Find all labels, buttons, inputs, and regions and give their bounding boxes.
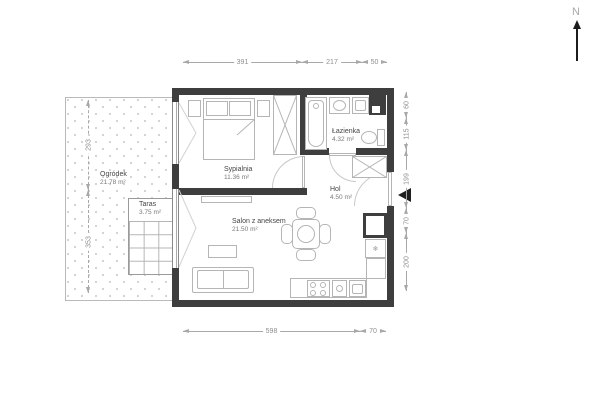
wall-top	[172, 88, 394, 95]
tv-board	[201, 196, 252, 203]
dim-label: 391	[234, 59, 252, 66]
sink-basin	[352, 284, 363, 294]
dim-label: 217	[323, 59, 341, 66]
dim-label: 70	[366, 328, 380, 335]
burner-3	[310, 290, 316, 296]
burner-2	[320, 282, 326, 288]
terrace-grid	[129, 221, 173, 274]
room-area: 11.36 m²	[224, 174, 252, 182]
fridge-icon: ❄	[373, 245, 379, 253]
dim-right-1: 60	[406, 92, 407, 118]
dim-left-1: 293	[88, 100, 89, 190]
room-name: Taras	[139, 201, 161, 209]
window-swing-marks	[179, 100, 199, 270]
pillow-left	[206, 101, 228, 116]
window-bedroom	[172, 102, 179, 164]
chair-bottom	[296, 249, 316, 261]
floor-plan: N Ogródek 21.78 m² Taras 3.75 m²	[0, 0, 600, 418]
room-name: Salon z aneksem	[232, 218, 286, 226]
wardrobe-bedroom	[273, 95, 297, 155]
washbasin-bowl	[333, 100, 346, 111]
wall-bathroom-hol-right	[356, 148, 387, 155]
fridge: ❄	[365, 239, 386, 258]
chair-top	[296, 207, 316, 219]
room-name: Sypialnia	[224, 166, 252, 174]
dim-bottom-2: 70	[360, 331, 386, 332]
dim-top-3: 50	[362, 62, 387, 63]
room-label-lazienka: Łazienka 4.32 m²	[332, 128, 360, 144]
room-area: 4.50 m²	[330, 194, 352, 202]
room-name: Łazienka	[332, 128, 360, 136]
room-area: 3.75 m²	[139, 209, 161, 217]
chair-right	[319, 224, 331, 244]
bathtub-drain	[313, 103, 319, 109]
north-label: N	[572, 6, 580, 18]
wall-left-upper	[172, 88, 179, 102]
room-label-sypialnia: Sypialnia 11.36 m²	[224, 166, 252, 182]
dining-table-top	[297, 225, 315, 243]
dim-top-1: 391	[183, 62, 302, 63]
nightstand-right	[257, 100, 270, 117]
wall-right-lower	[387, 206, 394, 307]
bedroom-door-arc	[272, 156, 304, 188]
dim-top-2: 217	[302, 62, 362, 63]
north-arrow-line	[576, 27, 578, 61]
bedroom-door-leaf	[302, 156, 305, 188]
dim-bottom-1: 598	[183, 331, 360, 332]
room-label-salon: Salon z aneksem 21.50 m²	[232, 218, 286, 234]
dim-label: 115	[404, 125, 411, 142]
sofa-divider	[223, 270, 224, 289]
nightstand-left	[188, 100, 201, 117]
wall-right-upper	[387, 88, 394, 172]
dim-right-5: 200	[406, 233, 407, 291]
dishwasher-dial	[336, 285, 343, 292]
room-label-ogrodek: Ogródek 21.78 m²	[100, 171, 127, 187]
dim-label: 60	[404, 98, 411, 112]
room-name: Ogródek	[100, 171, 127, 179]
window-salon	[172, 189, 179, 268]
room-area: 21.78 m²	[100, 179, 127, 187]
kitchen-counter-side	[366, 258, 386, 279]
dim-label: 200	[404, 253, 411, 271]
entrance-marker-icon	[398, 188, 411, 202]
pillow-right	[229, 101, 251, 116]
room-name: Hol	[330, 186, 352, 194]
dim-label: 293	[86, 136, 93, 154]
room-area: 21.50 m²	[232, 226, 286, 234]
kitchen-shaft-box	[363, 213, 387, 238]
room-label-hol: Hol 4.50 m²	[330, 186, 352, 202]
room-area: 4.32 m²	[332, 136, 360, 144]
washing-machine-inner	[355, 100, 366, 111]
shaft-notch	[372, 106, 380, 113]
dim-label: 70	[404, 214, 411, 228]
wall-left-middle	[172, 164, 179, 189]
dim-label: 50	[368, 59, 382, 66]
wall-bottom	[172, 300, 394, 307]
burner-1	[310, 282, 316, 288]
dim-label: 598	[263, 328, 281, 335]
wardrobe-hol	[352, 156, 387, 178]
dim-label: 199	[404, 170, 411, 188]
dim-right-4: 70	[406, 208, 407, 233]
wall-left-lower	[172, 268, 179, 307]
dim-left-2: 353	[88, 190, 89, 293]
entrance-door-leaf	[388, 172, 392, 206]
burner-4	[320, 290, 326, 296]
coffee-table	[208, 245, 237, 258]
room-label-taras: Taras 3.75 m²	[139, 201, 161, 217]
dim-right-3: 199	[406, 150, 407, 208]
blanket-fold	[236, 119, 256, 137]
dim-right-2: 115	[406, 118, 407, 150]
toilet-tank	[377, 129, 385, 146]
dim-label: 353	[86, 233, 93, 251]
toilet-bowl	[361, 131, 377, 144]
